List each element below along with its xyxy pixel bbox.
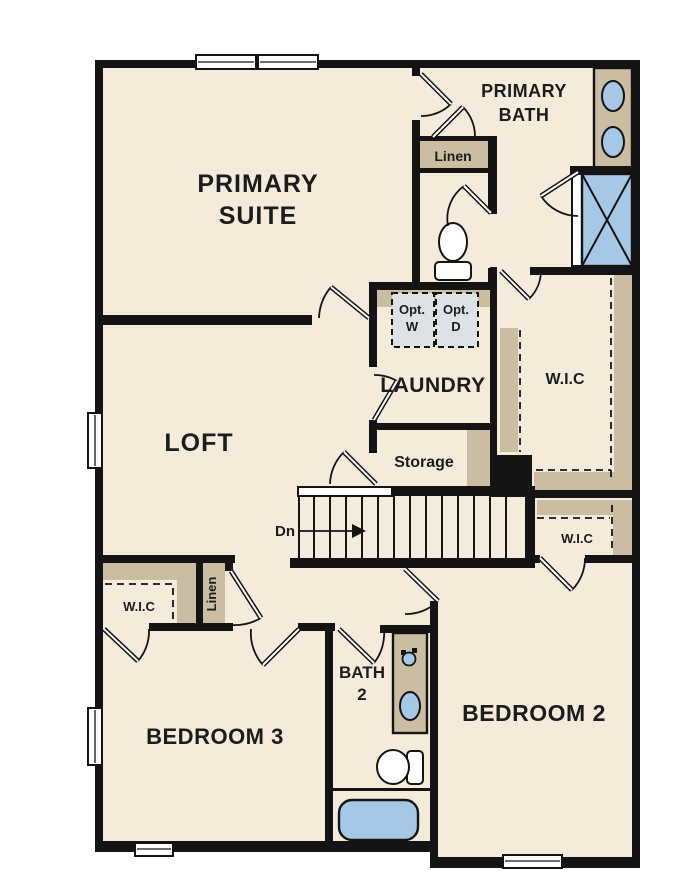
wic-hall-shelf-right	[613, 500, 632, 555]
toilet-bath2	[377, 750, 423, 784]
primary-sink-1	[602, 81, 624, 111]
label-bath2-line1: BATH	[339, 663, 385, 682]
label-opt-dryer-line2: D	[451, 319, 460, 334]
label-opt-dryer-line1: Opt.	[443, 302, 469, 317]
label-laundry: LAUNDRY	[380, 374, 485, 397]
toilet2-bowl	[377, 750, 409, 784]
floorplan-second-floor: PRIMARY SUITE PRIMARY BATH Linen Opt. W …	[0, 0, 679, 880]
label-wic-primary: W.I.C	[545, 371, 585, 388]
bathtub	[339, 800, 418, 840]
shower-door-panel	[572, 174, 582, 266]
label-opt-washer-line1: Opt.	[399, 302, 425, 317]
stair-rail	[298, 487, 392, 496]
storage-shelf	[467, 430, 490, 488]
label-opt-washer-line2: W	[406, 319, 419, 334]
label-primary-bath-line2: BATH	[499, 105, 550, 125]
label-linen-hall: Linen	[204, 577, 219, 612]
label-bedroom3: BEDROOM 3	[146, 724, 284, 749]
label-bedroom2: BEDROOM 2	[462, 700, 606, 726]
wic-primary-shelf-right	[614, 275, 632, 480]
primary-sink-2	[602, 127, 624, 157]
tub-niche-line	[333, 788, 430, 791]
wic-bedroom3-shelf-right	[177, 563, 196, 623]
bath2-sink	[400, 692, 420, 720]
label-bath2-line2: 2	[357, 685, 366, 704]
label-primary-bath-line1: PRIMARY	[481, 81, 567, 101]
faucet-body	[403, 653, 416, 666]
label-linen-bath: Linen	[434, 148, 471, 164]
faucet-handle-2	[412, 648, 417, 653]
toilet-water-closet	[435, 223, 471, 280]
toilet-tank	[435, 262, 471, 280]
label-wic-hall: W.I.C	[561, 531, 593, 546]
label-storage: Storage	[394, 454, 454, 471]
wic-primary-shelf-left	[500, 328, 518, 452]
label-primary-suite-line2: SUITE	[219, 202, 298, 230]
label-wic-bedroom3: W.I.C	[123, 599, 155, 614]
floorplan-svg: PRIMARY SUITE PRIMARY BATH Linen Opt. W …	[0, 0, 679, 880]
wic-primary-shelf-bottom	[534, 472, 632, 490]
toilet-bowl	[439, 223, 467, 261]
label-primary-suite-line1: PRIMARY	[197, 170, 318, 198]
label-stairs-dn: Dn	[275, 523, 295, 540]
label-loft: LOFT	[164, 429, 233, 457]
